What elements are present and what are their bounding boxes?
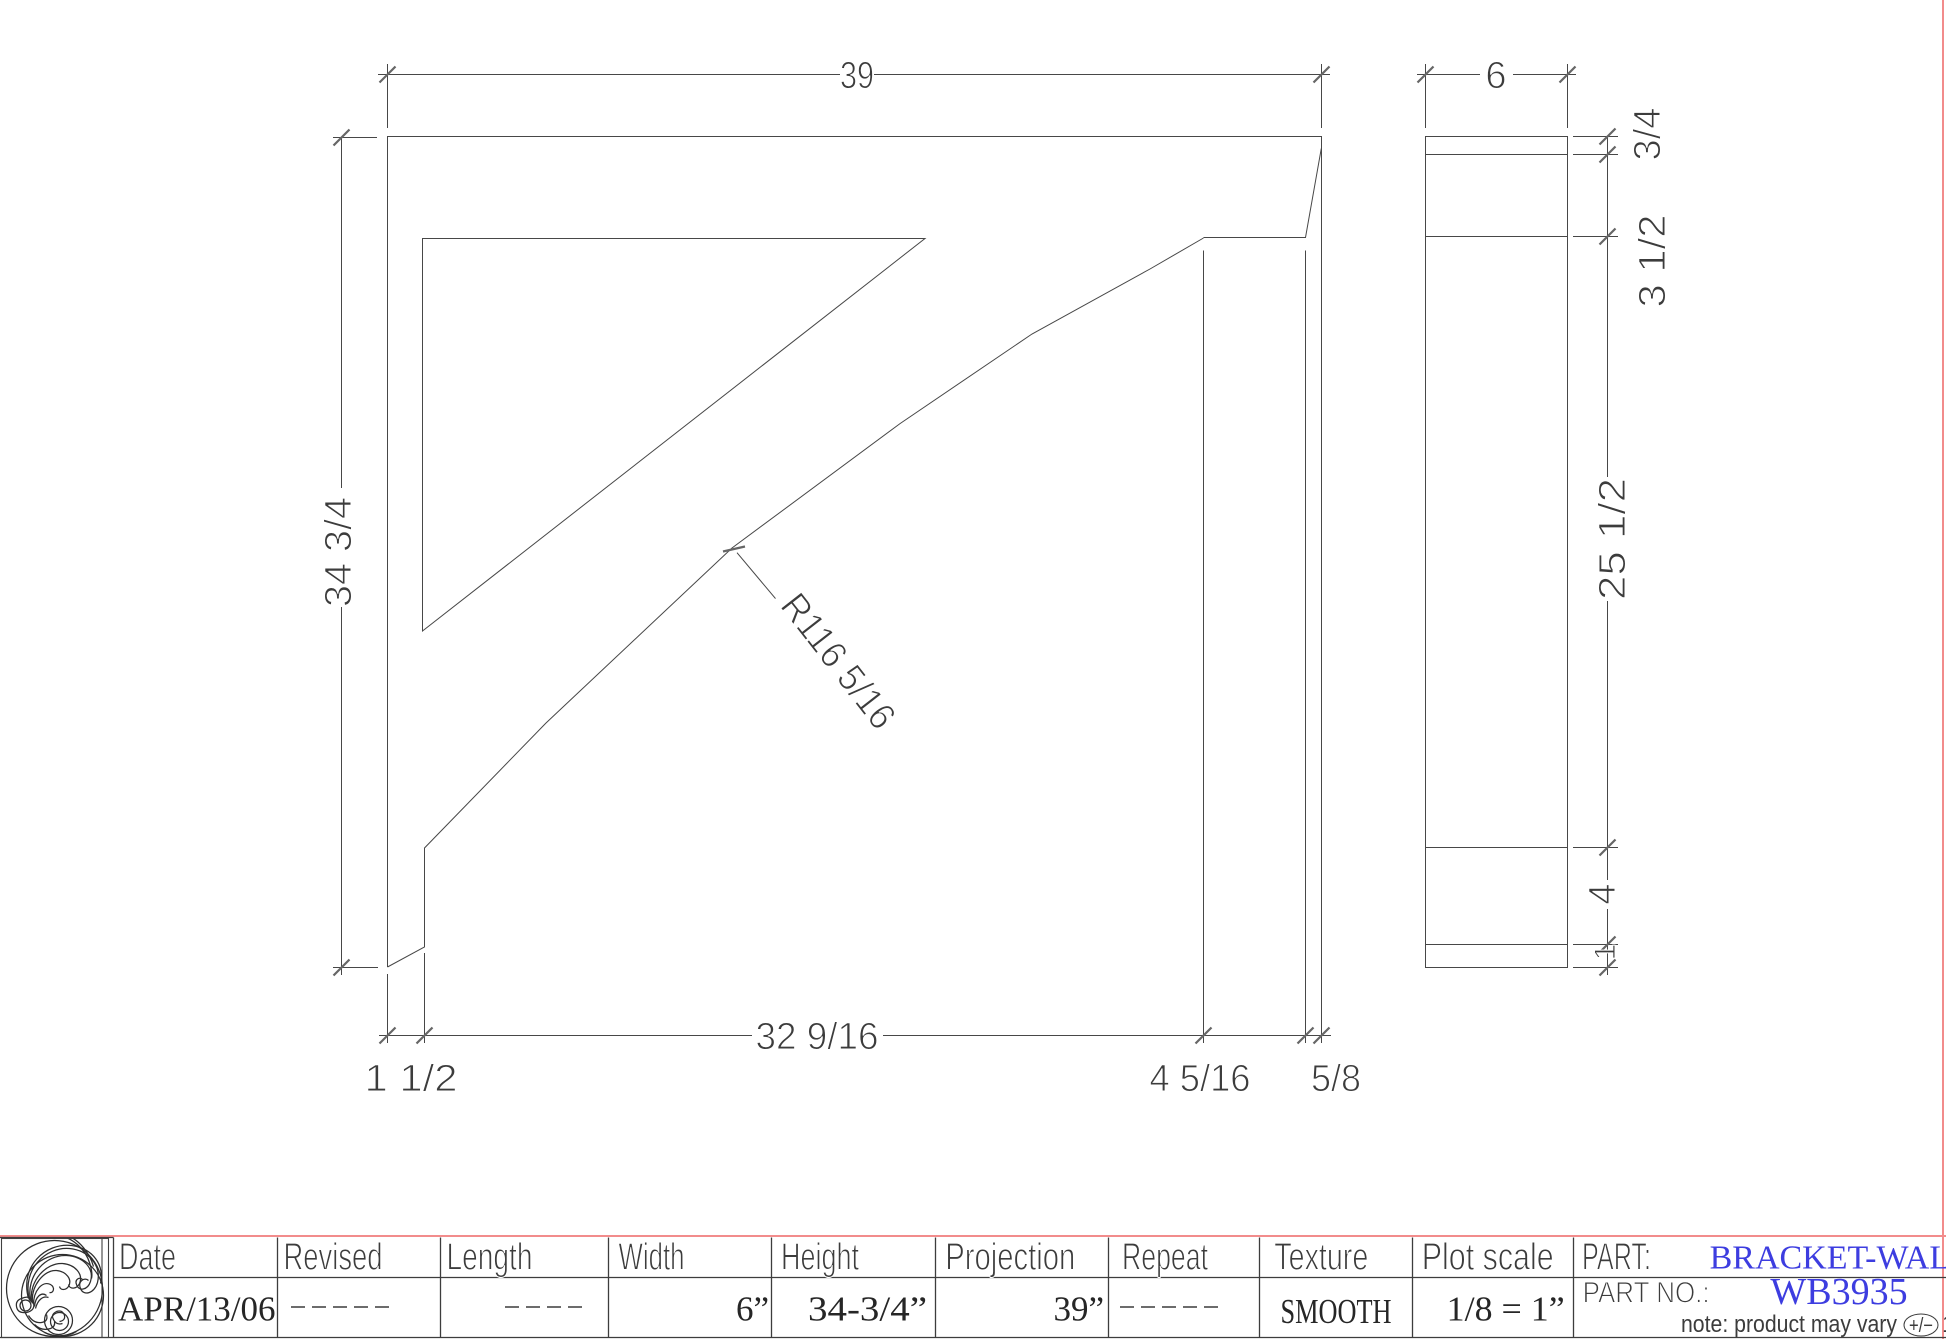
- svg-text:SMOOTH: SMOOTH: [1281, 1292, 1392, 1331]
- svg-text:note: product may vary: note: product may vary: [1681, 1311, 1897, 1338]
- svg-text:1/8 = 1”: 1/8 = 1”: [1447, 1290, 1565, 1329]
- svg-text:WB3935: WB3935: [1770, 1271, 1907, 1313]
- svg-text:4: 4: [1582, 883, 1624, 904]
- svg-text:Projection: Projection: [945, 1237, 1075, 1279]
- svg-text:5/8: 5/8: [1311, 1058, 1361, 1100]
- svg-text:39: 39: [840, 55, 874, 97]
- svg-text:1: 1: [1942, 1311, 1946, 1338]
- svg-text:6: 6: [1485, 55, 1506, 97]
- svg-text:1 1/2: 1 1/2: [365, 1058, 458, 1100]
- svg-text:PART:: PART:: [1582, 1237, 1651, 1279]
- svg-text:APR/13/06: APR/13/06: [118, 1290, 276, 1329]
- svg-text:32 9/16: 32 9/16: [756, 1016, 879, 1058]
- svg-text:3/4: 3/4: [1627, 108, 1669, 161]
- svg-text:+/−: +/−: [1909, 1315, 1933, 1337]
- svg-text:Width: Width: [619, 1237, 685, 1279]
- svg-text:34 3/4: 34 3/4: [318, 497, 360, 607]
- svg-text:1: 1: [1589, 944, 1622, 961]
- svg-text:Plot scale: Plot scale: [1422, 1237, 1554, 1279]
- svg-text:25 1/2: 25 1/2: [1592, 478, 1634, 600]
- svg-text:Height: Height: [781, 1237, 859, 1279]
- svg-text:PART NO.:: PART NO.:: [1583, 1276, 1710, 1309]
- svg-text:4 5/16: 4 5/16: [1150, 1058, 1251, 1100]
- svg-text:Length: Length: [447, 1237, 533, 1279]
- svg-text:Date: Date: [119, 1237, 176, 1279]
- svg-text:34-3/4”: 34-3/4”: [808, 1290, 927, 1329]
- svg-text:Repeat: Repeat: [1122, 1237, 1208, 1279]
- svg-text:6”: 6”: [736, 1290, 769, 1329]
- svg-text:Texture: Texture: [1274, 1237, 1368, 1279]
- svg-text:3 1/2: 3 1/2: [1632, 215, 1674, 308]
- svg-text:39”: 39”: [1053, 1290, 1104, 1329]
- svg-text:Revised: Revised: [284, 1237, 383, 1279]
